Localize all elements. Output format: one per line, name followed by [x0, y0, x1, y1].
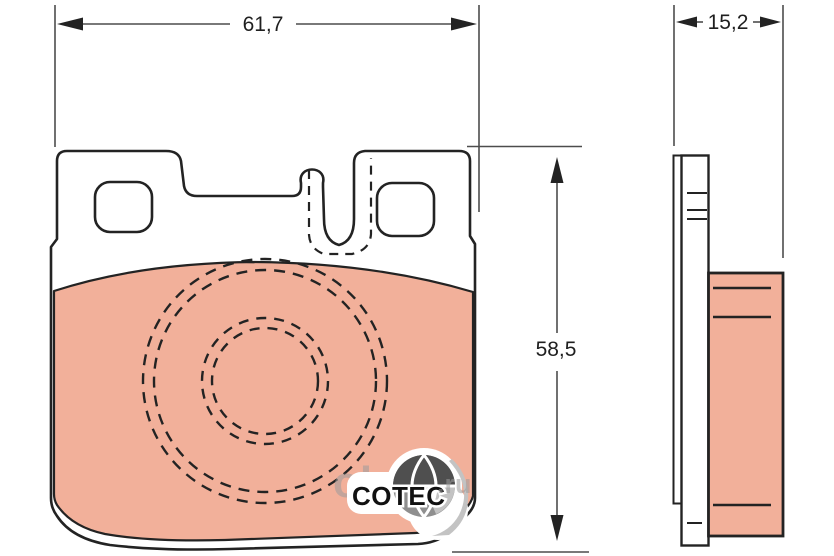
arrowhead-left	[676, 17, 697, 28]
drawing-canvas: obeo COTEC .ru	[0, 0, 834, 556]
dimension-thickness-value: 15,2	[708, 11, 749, 34]
dimension-width-value: 61,7	[243, 13, 284, 36]
side-view	[674, 156, 784, 546]
backing-plate-edge	[682, 156, 709, 546]
arrowhead-down	[551, 515, 564, 541]
left-lug-hole	[95, 182, 152, 232]
arrowhead-right	[760, 17, 781, 28]
arrowhead-right	[451, 18, 477, 31]
arrowhead-left	[57, 18, 83, 31]
shim-plate-edge	[674, 156, 682, 504]
brand-wordmark: COTEC	[352, 481, 446, 511]
friction-material-edge	[709, 273, 784, 536]
watermark-text-suffix: .ru	[437, 469, 472, 499]
brake-pad-drawing: obeo COTEC .ru	[0, 0, 834, 556]
dimension-height-value: 58,5	[536, 338, 577, 361]
arrowhead-up	[551, 157, 564, 183]
right-lug-hole	[377, 183, 434, 236]
